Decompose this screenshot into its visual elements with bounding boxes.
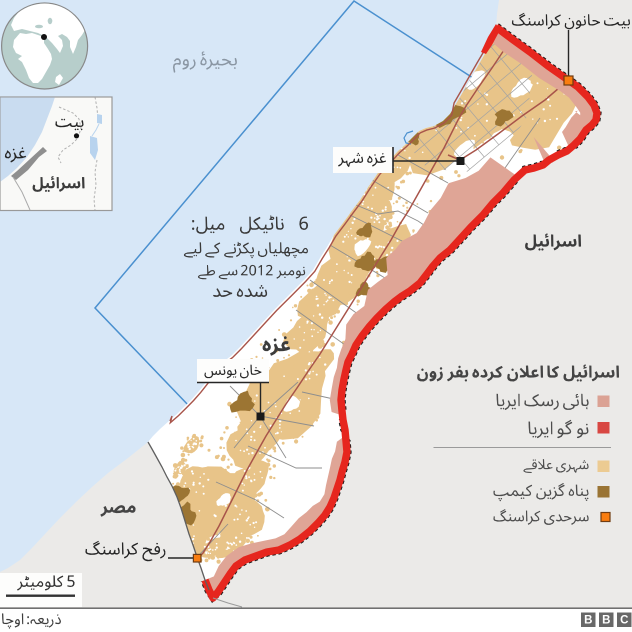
svg-text:B: B	[584, 615, 592, 627]
svg-text:B: B	[602, 615, 610, 627]
svg-text:C: C	[620, 615, 628, 627]
